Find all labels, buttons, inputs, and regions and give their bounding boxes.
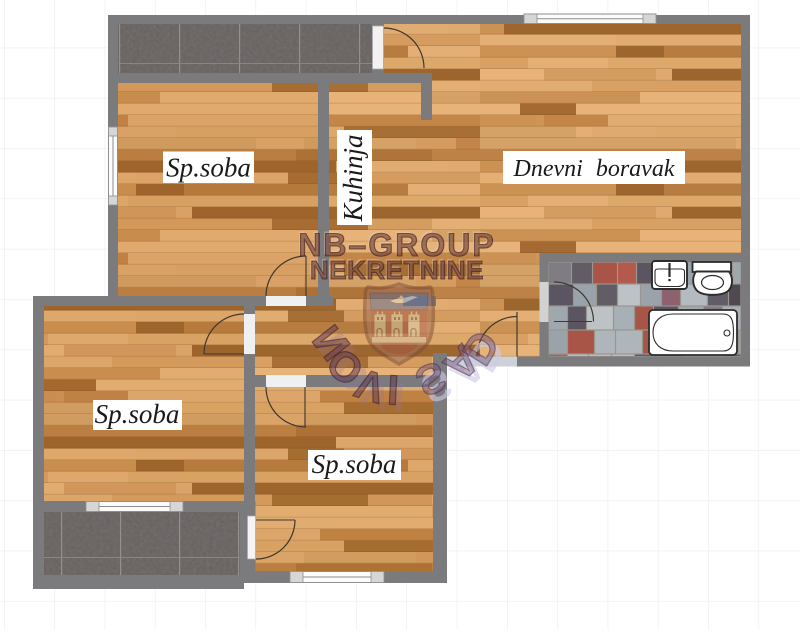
- svg-text:Sp.soba: Sp.soba: [312, 449, 397, 479]
- svg-text:NEKRETNINE: NEKRETNINE: [310, 255, 484, 285]
- svg-text:Sp.soba: Sp.soba: [95, 399, 180, 429]
- svg-text:Dnevni boravak: Dnevni boravak: [513, 156, 675, 182]
- svg-text:Kuhinja: Kuhinja: [338, 134, 368, 222]
- svg-text:Sp.soba: Sp.soba: [166, 153, 251, 183]
- svg-text:I: I: [386, 366, 400, 414]
